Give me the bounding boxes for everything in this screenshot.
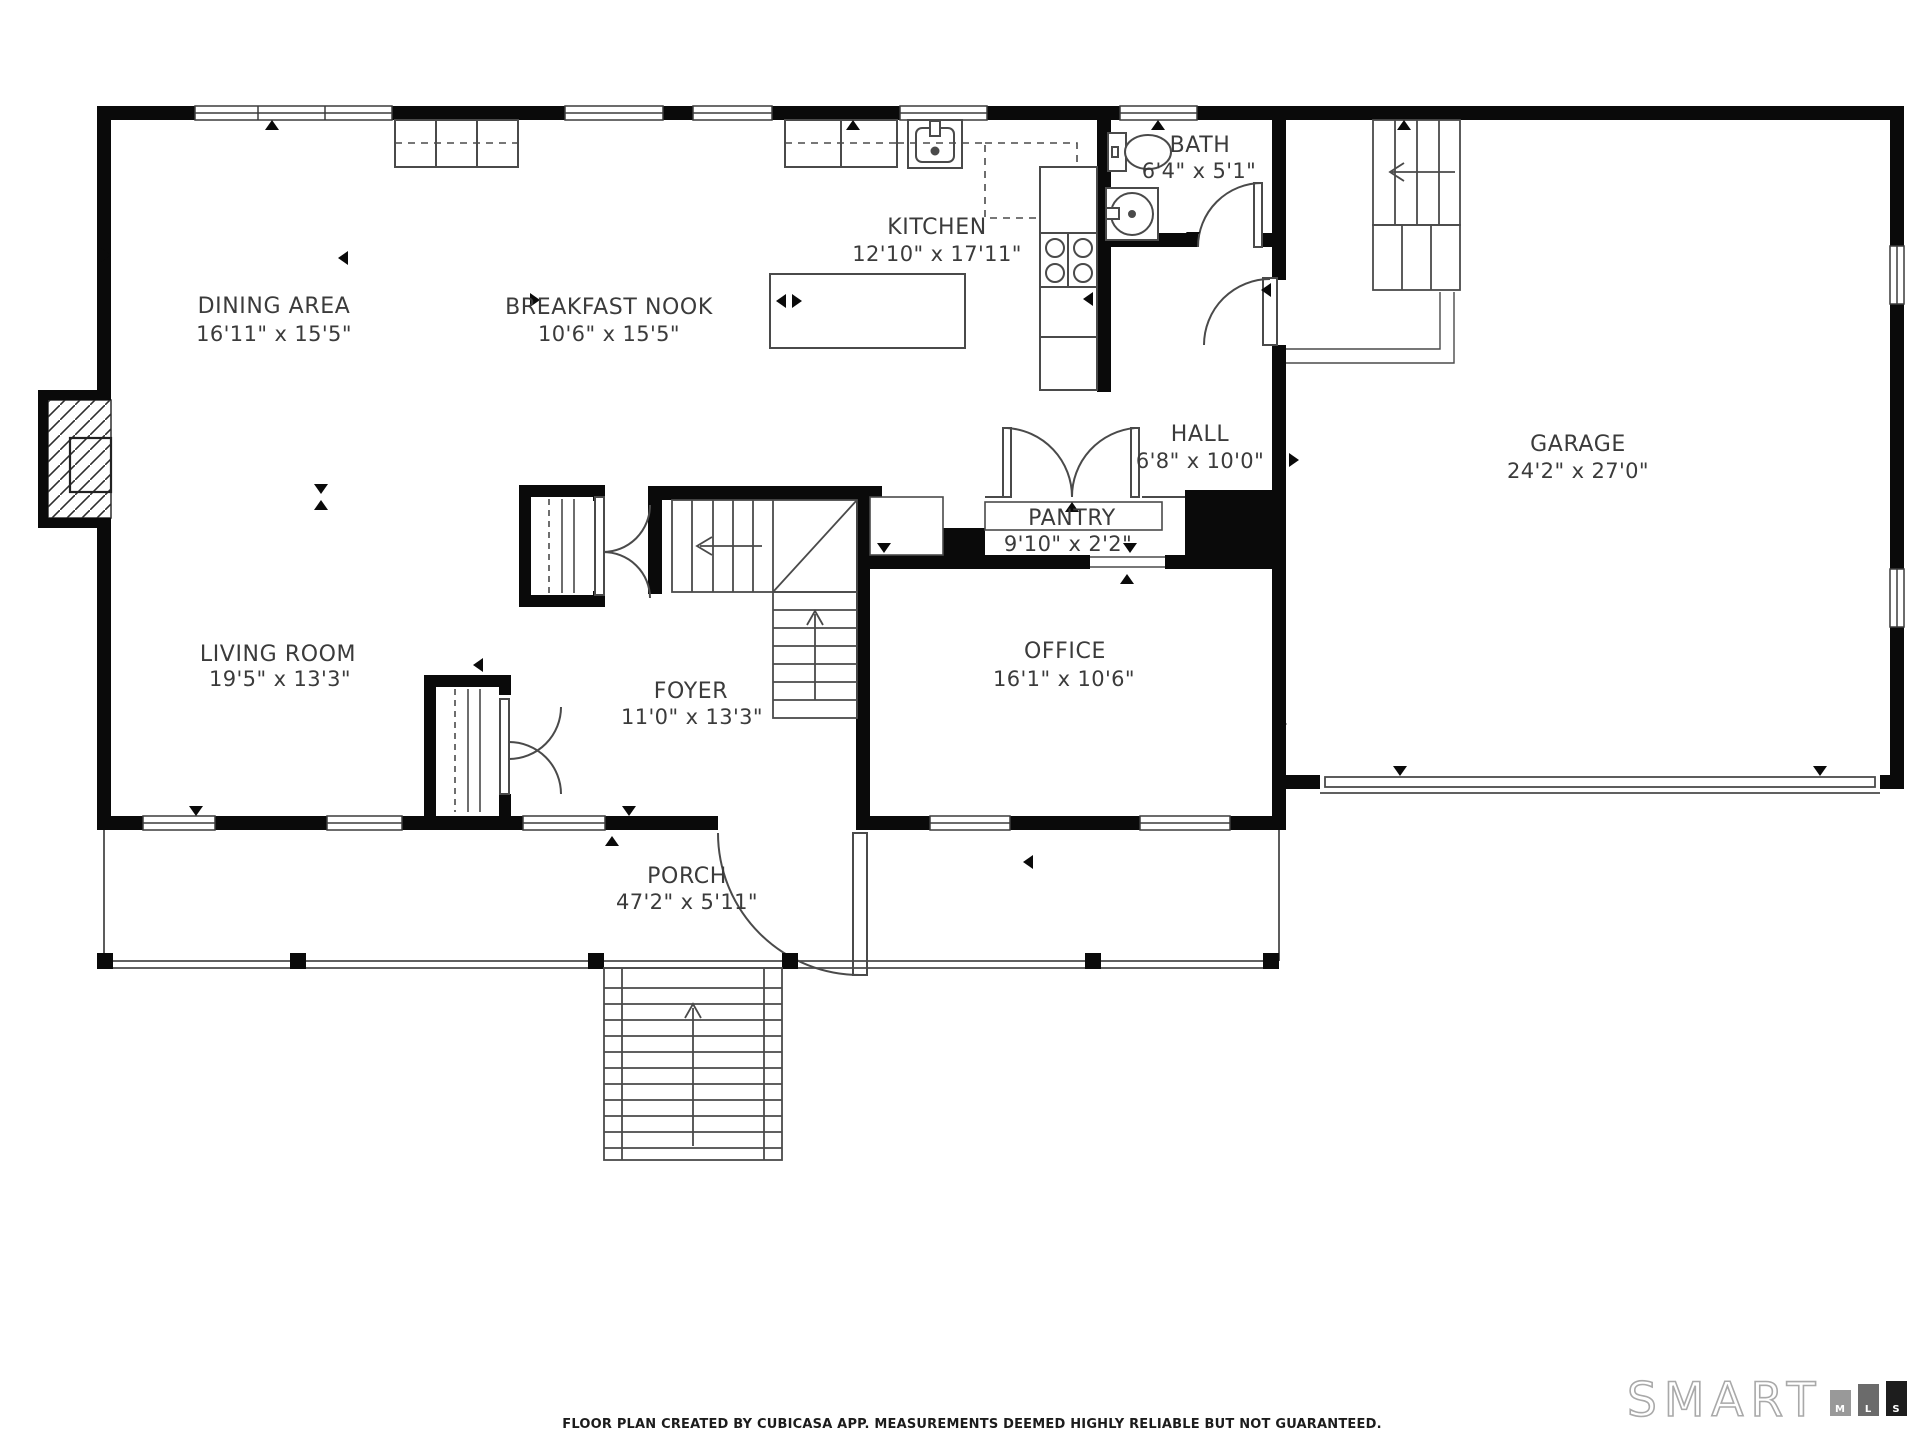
room-dims-office: 16'1" x 10'6" [993,667,1135,691]
door-bath [1198,183,1262,247]
room-dims-breakfast-nook: 10'6" x 15'5" [538,322,680,346]
window [523,816,605,830]
window [1890,569,1904,627]
kitchen-island [770,274,965,348]
room-dims-porch: 47'2" x 5'11" [616,890,758,914]
window [1120,106,1197,120]
stairs-garage [1286,120,1460,363]
footer-disclaimer: FLOOR PLAN CREATED BY CUBICASA APP. MEAS… [562,1417,1381,1432]
stairs-entry [604,968,782,1160]
room-dims-living-room: 19'5" x 13'3" [209,667,351,691]
window [930,816,1010,830]
window [1890,246,1904,304]
kitchen-sink-icon [908,120,962,168]
logo-brand-text: SMART [1627,1373,1822,1428]
room-label-foyer: FOYER [654,679,728,704]
window [327,816,402,830]
doors [500,278,1277,975]
room-dims-garage: 24'2" x 27'0" [1507,459,1649,483]
window [565,106,663,120]
smartmls-logo: SMART M L S [1627,1373,1907,1428]
window [1140,816,1230,830]
room-dims-pantry: 9'10" x 2'2" [1004,532,1132,556]
window [693,106,772,120]
office-opening [1090,557,1165,567]
room-dims-foyer: 11'0" x 13'3" [621,705,763,729]
room-label-kitchen: KITCHEN [887,215,987,240]
floor-plan-drawing: DINING AREA 16'11" x 15'5" BREAKFAST NOO… [0,0,1920,1440]
room-dims-kitchen: 12'10" x 17'11" [852,242,1022,266]
room-label-garage: GARAGE [1530,432,1626,457]
door-closet-north [595,497,650,598]
garage-door [1320,777,1880,793]
window [143,816,215,830]
counter [1040,167,1097,233]
door-closet-south [500,699,561,794]
room-label-pantry: PANTRY [1028,506,1116,531]
room-label-breakfast-nook: BREAKFAST NOOK [505,295,713,320]
room-label-porch: PORCH [647,864,727,889]
room-label-dining-area: DINING AREA [198,294,351,319]
counter [785,120,897,167]
window [195,106,392,120]
counter [395,120,518,167]
logo-letter-l: L [1865,1404,1872,1415]
fireplace-icon [38,390,111,528]
room-label-hall: HALL [1171,422,1230,447]
logo-letter-m: M [1835,1404,1845,1415]
room-label-office: OFFICE [1024,639,1106,664]
bathroom-sink-icon [1106,188,1158,240]
room-dims-bath: 6'4" x 5'1" [1142,159,1257,183]
window [900,106,987,120]
logo-letter-s: S [1892,1404,1899,1415]
room-label-bath: BATH [1170,133,1231,158]
room-label-living-room: LIVING ROOM [200,642,356,667]
stove-icon [1040,233,1097,287]
room-dims-dining-area: 16'11" x 15'5" [196,322,352,346]
room-dims-hall: 6'8" x 10'0" [1136,449,1264,473]
floor-plan-page: DINING AREA 16'11" x 15'5" BREAKFAST NOO… [0,0,1920,1440]
